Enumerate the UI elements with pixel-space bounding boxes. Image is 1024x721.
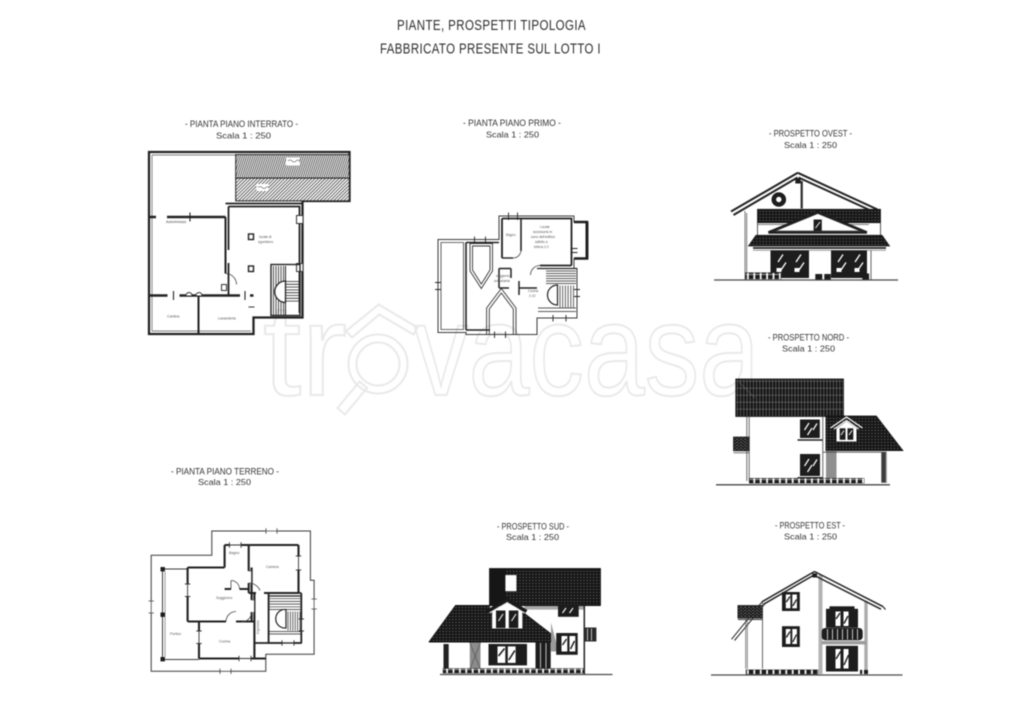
svg-text:2.10: 2.10: [529, 294, 536, 298]
svg-text:Bagno: Bagno: [506, 233, 516, 237]
svg-text:Scala 1 : 250: Scala 1 : 250: [784, 532, 837, 542]
svg-text:- PIANTA PIANO PRIMO -: - PIANTA PIANO PRIMO -: [463, 118, 561, 128]
svg-text:sono dell'edificio: sono dell'edificio: [531, 235, 555, 239]
svg-text:- PROSPETTO EST -: - PROSPETTO EST -: [775, 521, 845, 531]
svg-text:Cantina: Cantina: [167, 315, 179, 319]
svg-text:adibito a: adibito a: [535, 240, 548, 244]
svg-text:Soggiorno: Soggiorno: [216, 596, 232, 600]
svg-text:Cucina: Cucina: [219, 640, 230, 644]
svg-text:- PROSPETTO OVEST -: - PROSPETTO OVEST -: [769, 129, 852, 139]
svg-text:FABBRICATO PRESENTE SUL LOTTO: FABBRICATO PRESENTE SUL LOTTO I: [380, 42, 601, 58]
svg-text:locale di: locale di: [259, 235, 272, 239]
svg-text:Portico: Portico: [170, 632, 181, 636]
svg-text:- PIANTA PIANO TERRENO -: - PIANTA PIANO TERRENO -: [171, 467, 279, 477]
svg-text:sottostante: sottostante: [494, 279, 510, 283]
svg-text:soggiorno: soggiorno: [496, 274, 511, 278]
svg-text:Scala 1 : 250: Scala 1 : 250: [782, 344, 835, 354]
svg-text:- PROSPETTO NORD -: - PROSPETTO NORD -: [768, 333, 849, 343]
svg-text:Scala 1 : 250: Scala 1 : 250: [216, 131, 271, 141]
svg-text:Scala 1 : 250: Scala 1 : 250: [506, 532, 559, 542]
svg-text:accessorio in: accessorio in: [533, 230, 552, 234]
svg-text:- PIANTA PIANO INTERRATO -: - PIANTA PIANO INTERRATO -: [185, 119, 298, 129]
svg-text:Bagno: Bagno: [229, 551, 239, 555]
svg-text:Scala 1 : 250: Scala 1 : 250: [486, 130, 539, 140]
svg-text:Autorimessa: Autorimessa: [166, 220, 186, 224]
svg-text:- PROSPETTO SUD -: - PROSPETTO SUD -: [497, 522, 569, 532]
svg-text:Scala 1 : 250: Scala 1 : 250: [198, 477, 251, 487]
svg-text:Locale: Locale: [540, 225, 550, 229]
svg-text:lettura 2.2: lettura 2.2: [534, 245, 549, 249]
svg-text:sgombero: sgombero: [258, 240, 273, 244]
svg-text:Scala 1 : 250: Scala 1 : 250: [784, 140, 837, 150]
svg-text:Ingresso: Ingresso: [256, 620, 260, 634]
svg-text:Cucina: Cucina: [528, 289, 538, 293]
svg-text:Camera: Camera: [266, 565, 279, 569]
svg-text:Lavanderia: Lavanderia: [218, 317, 236, 321]
svg-text:PIANTE, PROSPETTI TIPOLOGIA: PIANTE, PROSPETTI TIPOLOGIA: [397, 18, 586, 34]
